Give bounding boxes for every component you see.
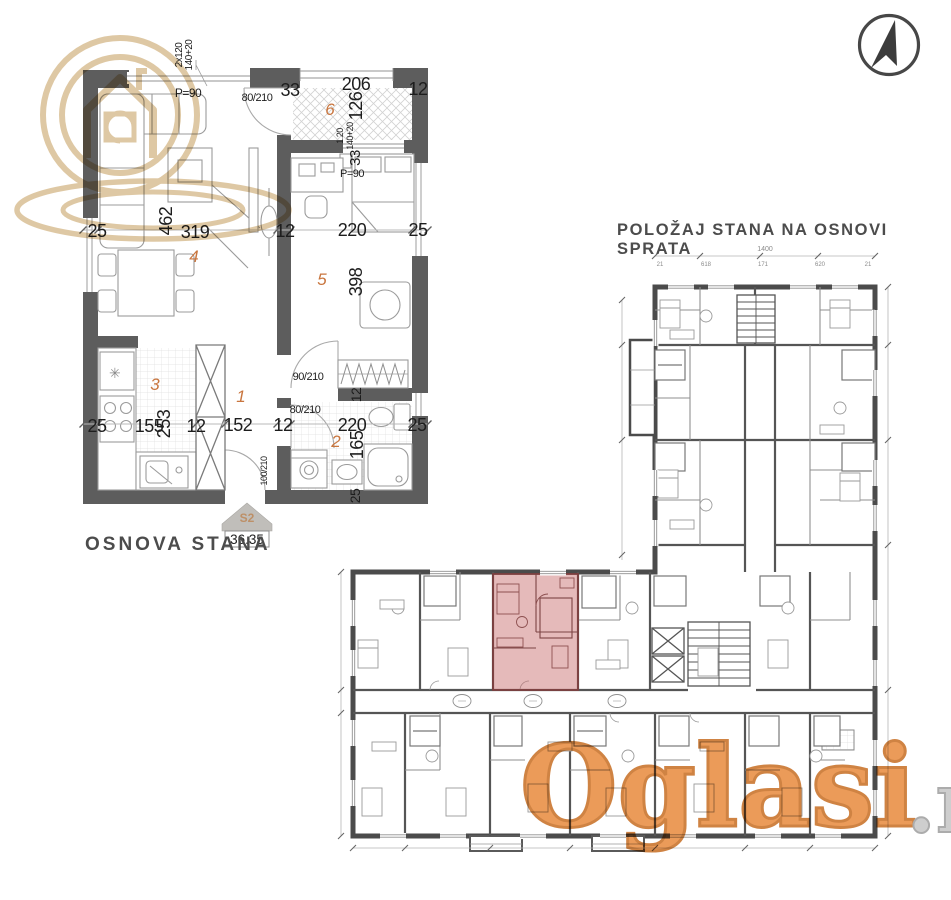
dimension-label: 12 [186,416,206,436]
dimension-label: 1.20 [335,128,345,144]
left-plan-title: OSNOVA STANA [85,534,271,556]
oglasi-watermark: Oglasi.rs [520,722,951,853]
dimension-label: 12 [273,415,293,435]
right-plan-title: POLOŽAJ STANA NA OSNOVI SPRATA [617,221,951,259]
room-number: 1 [236,387,245,406]
dimension-label: 398 [346,267,366,296]
dimension-label: 126 [346,91,366,120]
highlighted-unit [493,574,578,690]
dimension-label: 152 [224,415,253,435]
dimension-label: 25 [87,416,107,436]
room-number: 6 [325,100,335,119]
logo-watermark [5,15,315,250]
dimension-label: 80/210 [290,404,321,416]
building-dimension-label: 618 [701,262,712,268]
dimension-label: 25 [408,220,428,240]
dimension-label: 33 [347,150,364,166]
dimension-label: 220 [338,220,367,240]
dimension-label: 253 [154,409,174,438]
dimension-label: 140+20 [345,122,355,150]
dimension-label: 90/210 [293,371,324,383]
bay-window [630,340,655,435]
room-number: 2 [330,432,341,451]
dimension-label: 25 [347,488,363,503]
building-dimension-label: 21 [657,262,664,268]
dimension-label: 100/210 [259,456,269,486]
north-arrow-icon [851,8,927,84]
oglasi-brand-text: Oglasi [520,722,917,853]
building-dimension-label: 171 [758,262,769,268]
building-dimension-label: 21 [865,262,872,268]
dimension-label: 165 [347,430,367,459]
dimension-label: 25 [407,415,427,435]
dimension-label: 12 [348,387,364,402]
badge-unit-label: S2 [240,511,255,525]
room-number: 5 [317,270,327,289]
dimension-label: 12 [408,79,428,99]
room-number: 3 [150,375,160,394]
floorplan-image: ✳ 2x120140+20P=9080/21033206126121.20140… [0,0,951,900]
freezer-symbol: ✳ [109,365,121,381]
building-dimension-label: 620 [815,262,826,268]
dimension-label: 206 [342,74,371,94]
dimension-label: P=90 [340,168,364,180]
oglasi-tld-text: .rs [907,753,951,852]
